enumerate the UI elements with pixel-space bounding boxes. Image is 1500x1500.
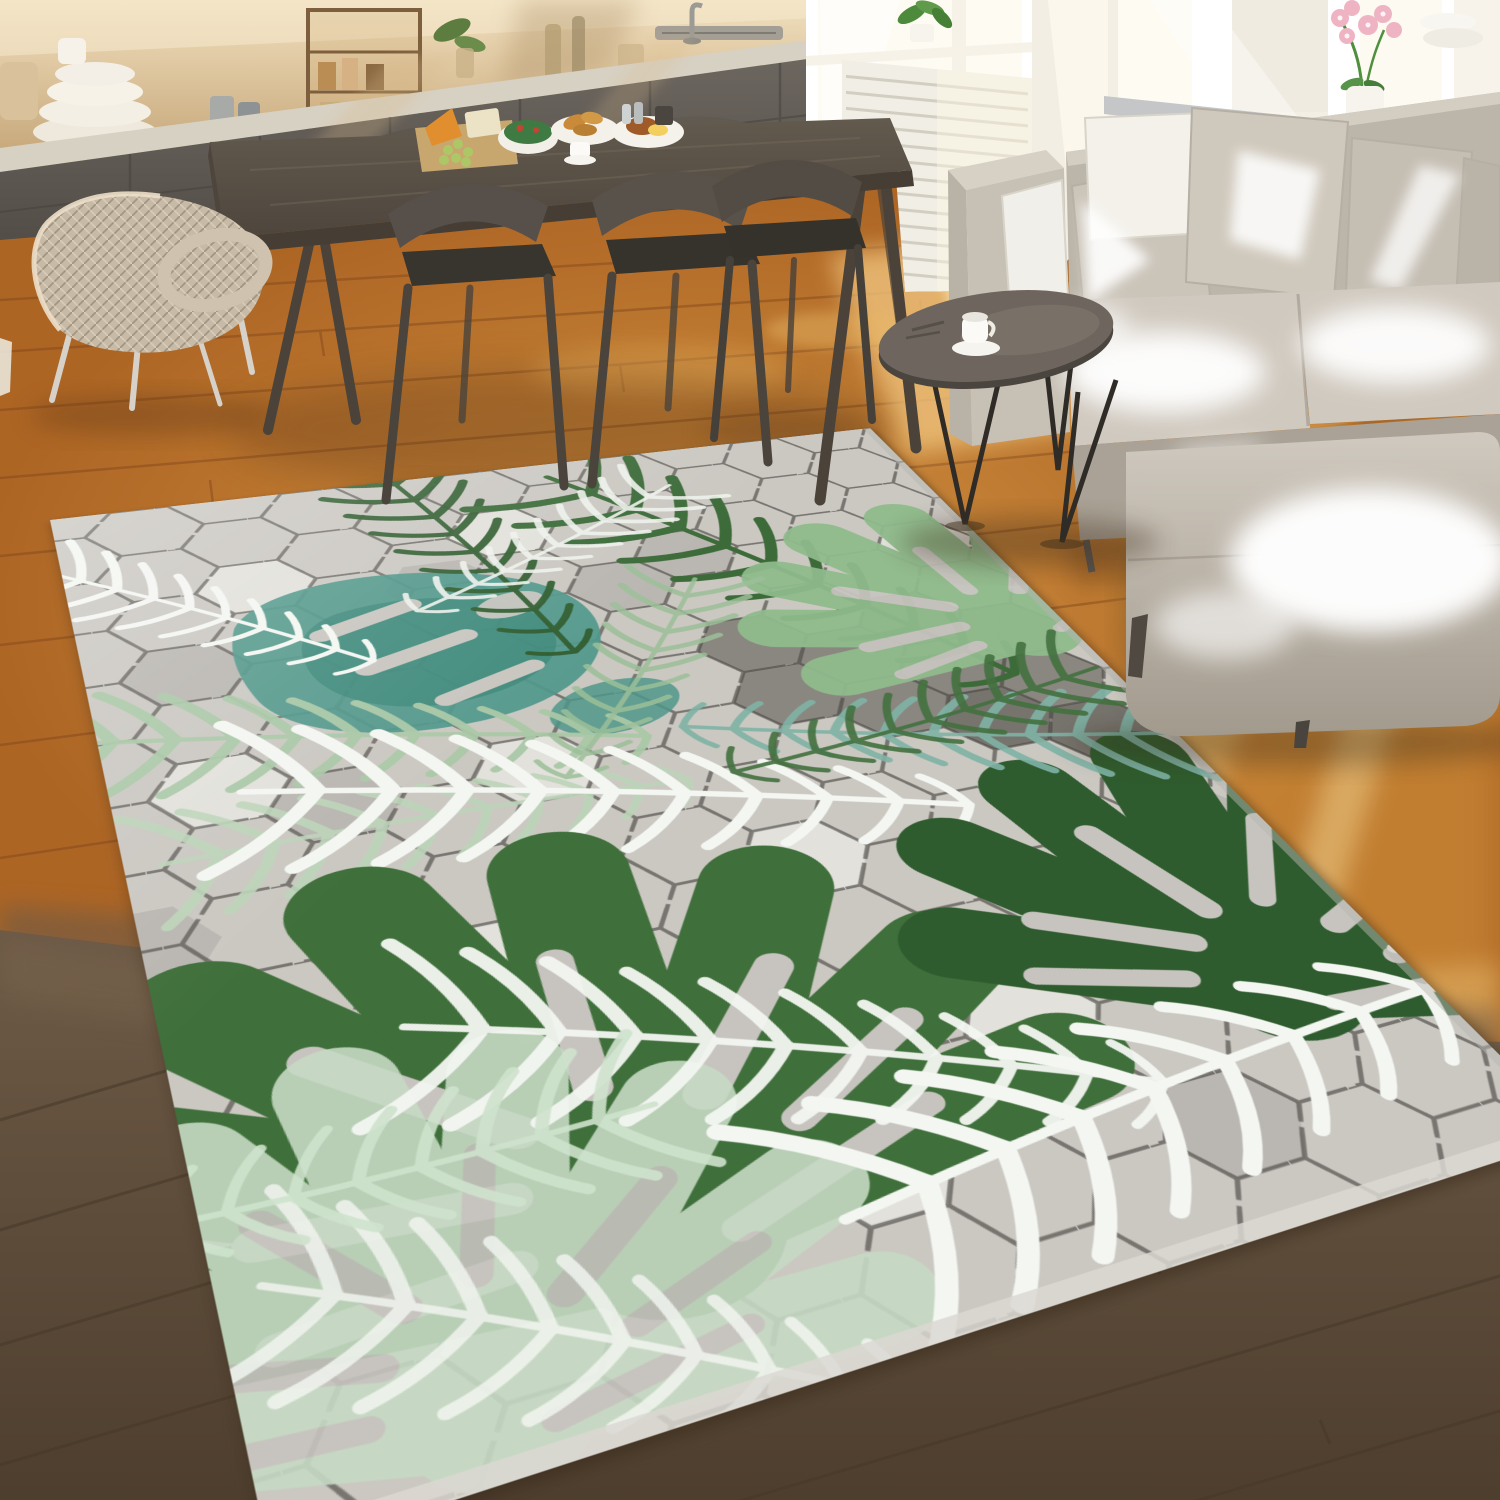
- sunlight-spot: [765, 312, 905, 348]
- living-room-photo: [0, 0, 1500, 1500]
- armchair-shadow: [30, 395, 270, 435]
- orchid-pot: [1346, 86, 1384, 120]
- pot: [0, 62, 38, 120]
- pot-shadow: [1343, 117, 1387, 127]
- radiator-sunlight: [937, 69, 1032, 306]
- window-frame: [806, 0, 818, 134]
